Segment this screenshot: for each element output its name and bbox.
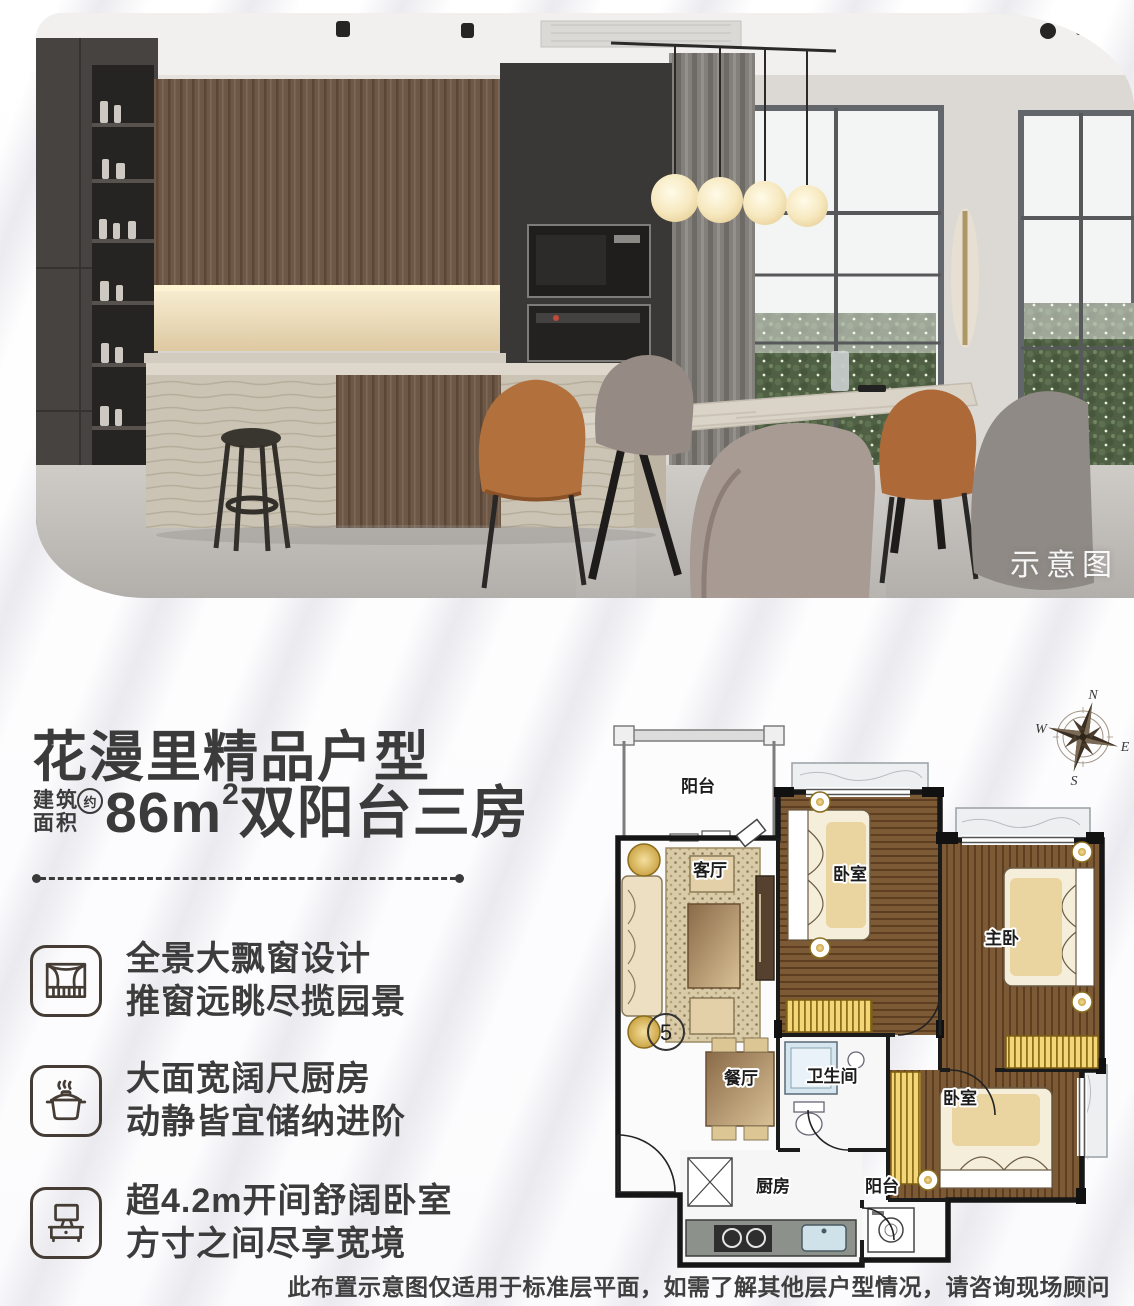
compass-icon: N E S W [1035,688,1130,789]
living-room-furniture [622,819,774,1048]
feature-bay-window: 全景大飘窗设计 推窗远眺尽揽园景 [30,938,406,1024]
feature-text: 大面宽阔尺厨房 动静皆宜储纳进阶 [126,1058,406,1144]
area-prefix: 建筑 面积 [33,789,79,836]
compass-s: S [1071,774,1078,789]
approx-circle: 约 [77,788,103,814]
disclaimer-text: 此布置示意图仅适用于标准层平面，如需了解其他层户型情况，请咨询现场顾问 [288,1268,1111,1302]
label-dining: 餐厅 [724,1068,758,1088]
compass-e: E [1120,740,1130,755]
dotted-divider [32,874,464,883]
washing-machine [868,1208,914,1252]
window-curtain-icon [30,945,102,1017]
label-master: 主卧 [985,928,1019,948]
area-value: 86m2双阳台三房 [105,780,529,842]
wood-upper-cabinets [154,79,500,287]
feature-text: 超4.2m开间舒阔卧室 方寸之间尽享宽境 [126,1180,453,1266]
tv-stand-icon [30,1187,102,1259]
label-bedroom2: 卧室 [943,1088,977,1108]
label-balcony-top: 阳台 [681,776,715,796]
label-balcony-bottom: 阳台 [865,1176,899,1196]
area-subtitle: 建筑 面积 约 86m2双阳台三房 [33,780,529,842]
feature-bedroom: 超4.2m开间舒阔卧室 方寸之间尽享宽境 [30,1180,453,1266]
wall-lamp [951,208,979,348]
unit-number: 5 [660,1020,672,1045]
open-shelving [92,65,154,493]
master-furniture [1004,842,1094,1012]
kitchen-photo-illustration [36,13,1134,598]
photo-disclaimer-badge: 示意图 [1010,540,1118,584]
label-bedroom1: 卧室 [833,864,867,884]
dining-furniture [706,1038,774,1140]
label-living: 客厅 [692,860,727,880]
under-cabinet-light [154,285,500,291]
compass-n: N [1087,688,1098,703]
backsplash [154,291,500,351]
compass-w: W [1035,722,1048,737]
label-kitchen: 厨房 [756,1176,790,1196]
floor-plan: N E S W [610,680,1134,1280]
kitchen-photo: 示意图 [36,13,1134,598]
feature-text: 全景大飘窗设计 推窗远眺尽揽园景 [126,938,406,1024]
oven-column [500,63,672,363]
floor-plan-drawing: N E S W [610,680,1134,1280]
cooking-pot-icon [30,1065,102,1137]
label-bathroom: 卫生间 [807,1066,858,1086]
feature-kitchen: 大面宽阔尺厨房 动静皆宜储纳进阶 [30,1058,406,1144]
kitchen-island [144,353,666,545]
